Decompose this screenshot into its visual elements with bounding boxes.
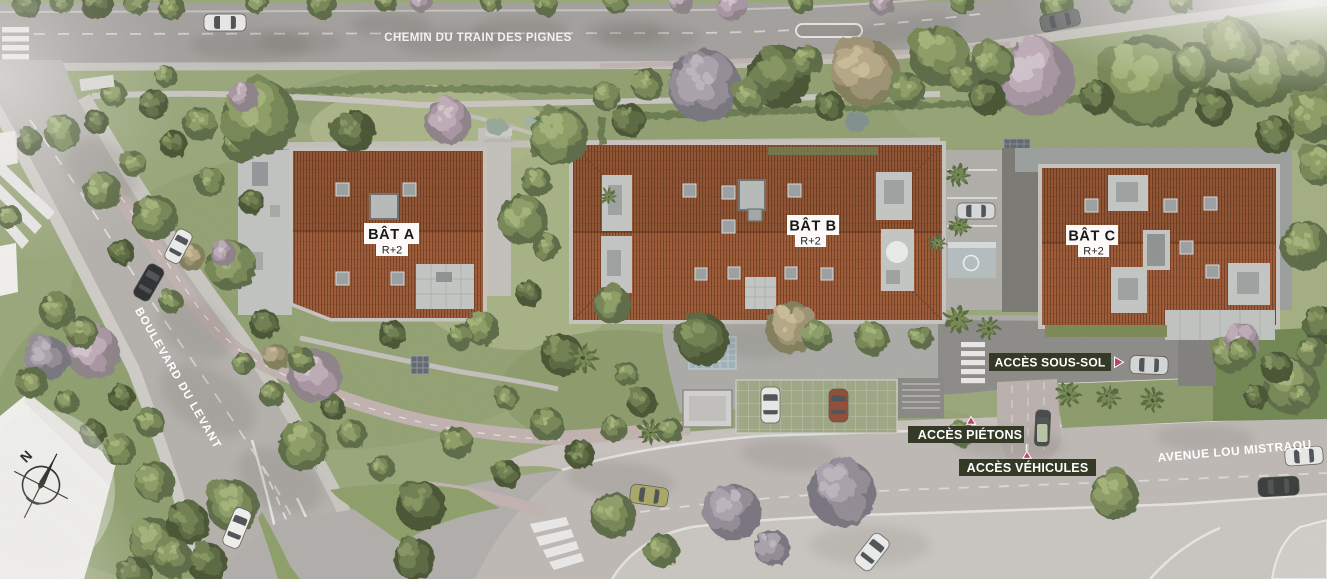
- svg-text:BÂT A: BÂT A: [368, 225, 415, 243]
- svg-text:R+2: R+2: [1083, 246, 1104, 258]
- svg-text:CHEMIN DU TRAIN DES PIGNES: CHEMIN DU TRAIN DES PIGNES: [384, 32, 571, 44]
- svg-text:ACCÈS PIÉTONS: ACCÈS PIÉTONS: [918, 427, 1022, 442]
- svg-text:R+2: R+2: [382, 245, 403, 257]
- svg-text:R+2: R+2: [800, 236, 821, 248]
- svg-text:BÂT B: BÂT B: [789, 217, 836, 235]
- svg-text:ACCÈS SOUS-SOL: ACCÈS SOUS-SOL: [995, 355, 1106, 370]
- svg-text:BÂT C: BÂT C: [1068, 227, 1115, 245]
- svg-text:ACCÈS VÉHICULES: ACCÈS VÉHICULES: [967, 460, 1089, 475]
